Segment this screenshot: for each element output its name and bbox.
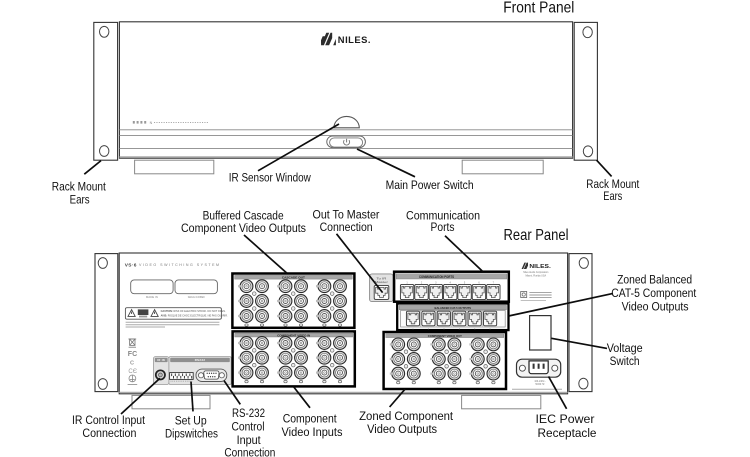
svg-text:Component: Component xyxy=(283,412,337,426)
svg-text:Video Outputs: Video Outputs xyxy=(367,422,437,436)
svg-text:Ports: Ports xyxy=(431,220,455,234)
svg-text:C: C xyxy=(130,361,134,367)
svg-text:RS232: RS232 xyxy=(195,358,206,362)
svg-text:IEC Power: IEC Power xyxy=(536,412,595,426)
svg-text:50/60 Hz: 50/60 Hz xyxy=(535,384,545,386)
svg-text:COMPONENT VIDEO IN: COMPONENT VIDEO IN xyxy=(277,333,311,337)
svg-text:Connection: Connection xyxy=(224,445,275,457)
svg-text:AVIS: RISQUE DE CHOC ELECTRIQU: AVIS: RISQUE DE CHOC ELECTRIQUE. NE PAS … xyxy=(161,315,228,318)
svg-text:Receptacle: Receptacle xyxy=(538,426,597,440)
svg-text:MADE IN: MADE IN xyxy=(146,295,158,299)
svg-text:Ears: Ears xyxy=(70,193,90,207)
svg-text:CAUTION: RISK OF ELECTRIC SHOC: CAUTION: RISK OF ELECTRIC SHOCK. DO NOT … xyxy=(161,310,226,313)
svg-text:CASCADE OUT: CASCADE OUT xyxy=(282,276,305,280)
svg-text:Video Inputs: Video Inputs xyxy=(282,425,343,439)
svg-text:SERIAL NUMBER: SERIAL NUMBER xyxy=(188,295,205,299)
svg-text:IR Control Input: IR Control Input xyxy=(72,413,145,427)
svg-text:Main Power Switch: Main Power Switch xyxy=(386,178,474,192)
svg-text:RS-232: RS-232 xyxy=(232,406,265,420)
svg-text:CAT-5 Component: CAT-5 Component xyxy=(611,286,696,300)
svg-text:COMMUNICATION PORTS: COMMUNICATION PORTS xyxy=(419,275,454,279)
svg-text:COMPONENT VIDEO OUT: COMPONENT VIDEO OUT xyxy=(428,334,462,338)
svg-text:Component Video Outputs: Component Video Outputs xyxy=(181,221,306,235)
svg-text:Front Panel: Front Panel xyxy=(503,0,574,17)
svg-text:CЄ: CЄ xyxy=(128,369,137,375)
svg-text:NILES.: NILES. xyxy=(338,34,371,45)
svg-text:Connection: Connection xyxy=(320,220,373,234)
svg-text:Switch: Switch xyxy=(610,354,640,368)
svg-text:IR Sensor Window: IR Sensor Window xyxy=(229,170,311,184)
svg-text:Rear Panel: Rear Panel xyxy=(504,227,569,244)
svg-text:VIDEO SWITCHING SYSTEM: VIDEO SWITCHING SYSTEM xyxy=(139,263,221,267)
svg-text:Video Outputs: Video Outputs xyxy=(622,299,689,313)
svg-text:FC: FC xyxy=(128,351,137,358)
svg-text:Zoned Component: Zoned Component xyxy=(359,409,454,423)
svg-text:VS·6: VS·6 xyxy=(125,262,137,268)
svg-text:IR IN: IR IN xyxy=(157,358,165,362)
svg-text:Zoned Balanced: Zoned Balanced xyxy=(617,272,692,286)
svg-text:Set Up: Set Up xyxy=(175,413,207,427)
svg-text:Ears: Ears xyxy=(603,189,622,203)
svg-text:N: N xyxy=(150,121,153,125)
svg-text:Miami, Florida USA: Miami, Florida USA xyxy=(526,274,547,277)
svg-text:Control: Control xyxy=(232,420,265,434)
svg-text:100-240V~: 100-240V~ xyxy=(534,381,546,383)
svg-text:Rack Mount: Rack Mount xyxy=(52,179,106,193)
svg-text:NILES.: NILES. xyxy=(529,264,551,270)
svg-text:Master: Master xyxy=(375,281,388,284)
svg-text:Connection: Connection xyxy=(82,426,136,440)
svg-text:BALANCED CAT-5 OUTPUTS: BALANCED CAT-5 OUTPUTS xyxy=(435,306,472,310)
svg-text:Dipswitches: Dipswitches xyxy=(165,427,218,441)
